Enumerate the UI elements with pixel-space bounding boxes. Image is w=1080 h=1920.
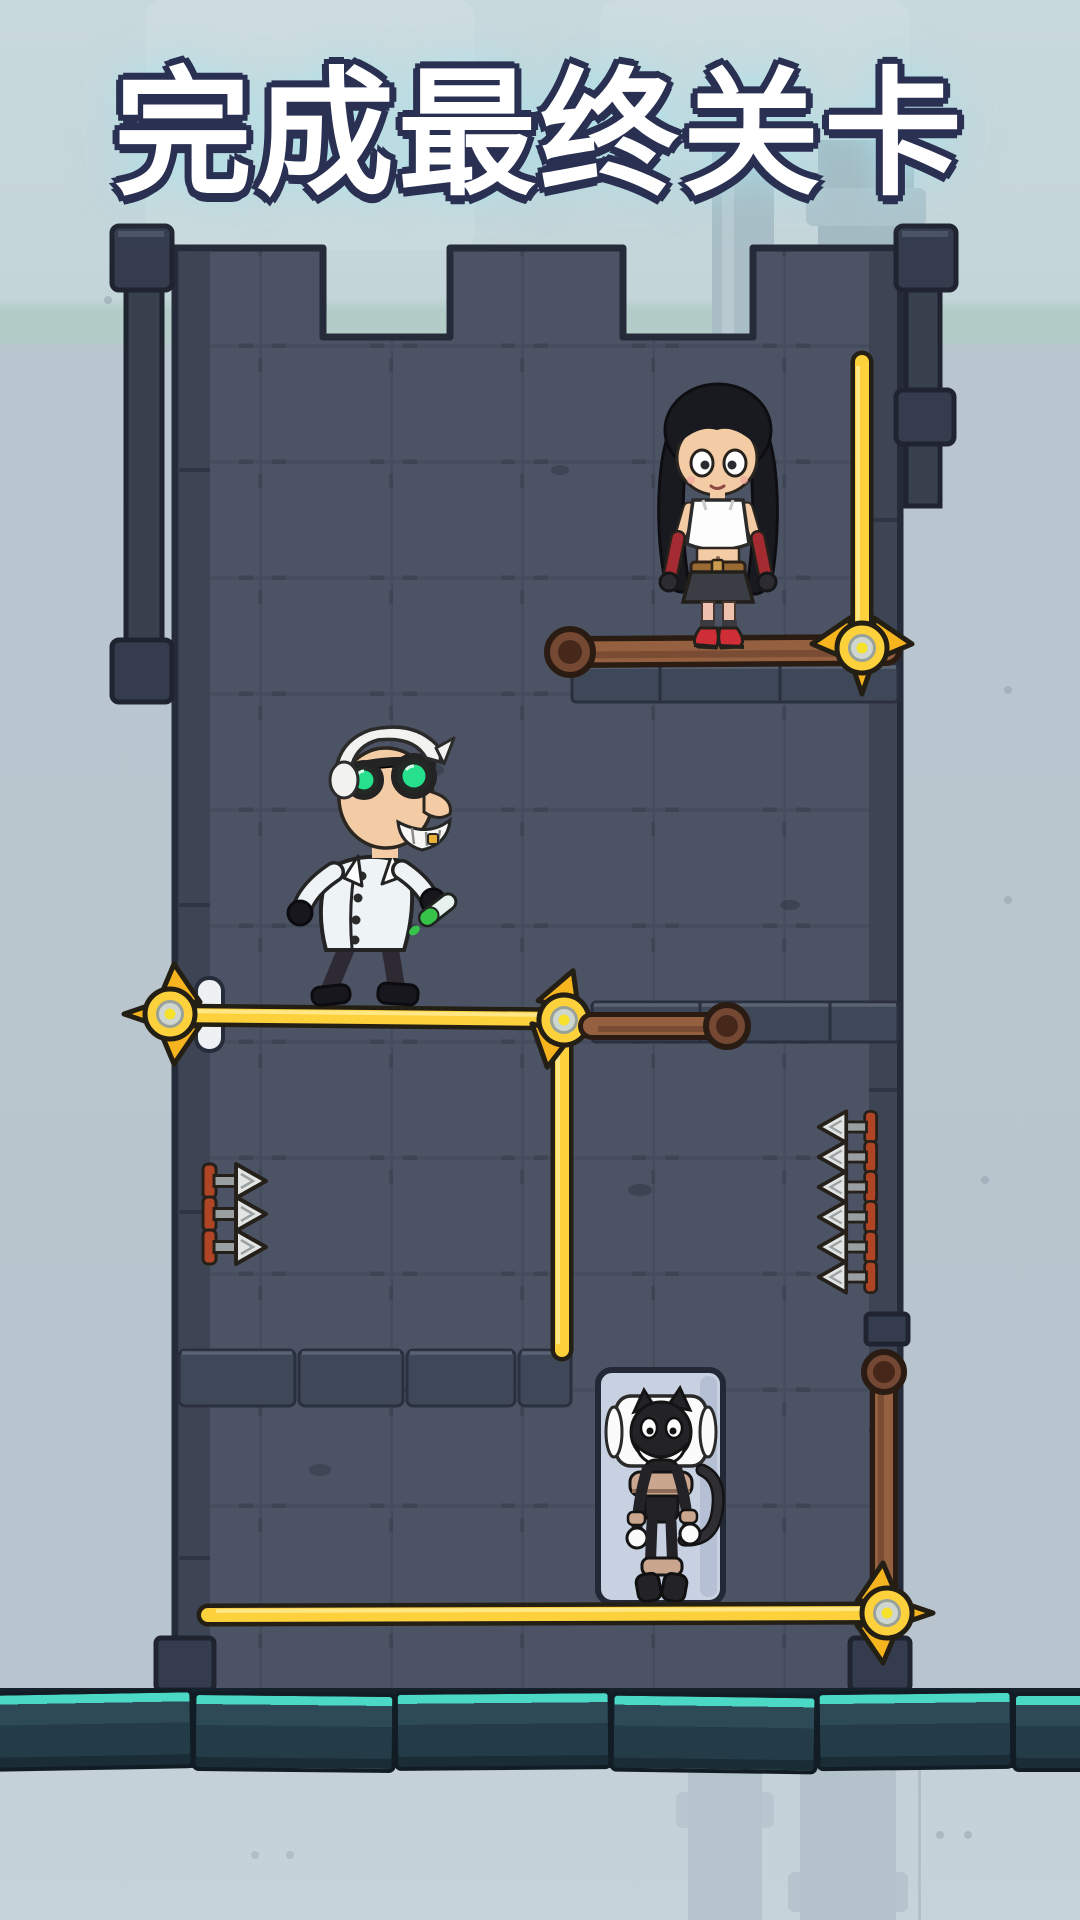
floor-stone: [609, 1692, 818, 1775]
floor-stone: [394, 1689, 613, 1771]
level-scene: [0, 0, 1080, 1920]
left-wall-spikes: [203, 1164, 266, 1264]
wall-left-border: [179, 252, 210, 1690]
game-stage: 完成最终关卡: [0, 0, 1080, 1920]
floor-stone: [816, 1689, 1015, 1771]
floor-stone: [1012, 1692, 1080, 1772]
cat-box: [598, 1370, 723, 1603]
castle-tower: [112, 226, 956, 1692]
level-objective-banner: 完成最终关卡: [0, 22, 1080, 222]
floor-stone: [192, 1691, 397, 1773]
floor-stone: [0, 1688, 195, 1772]
level-objective-text: 完成最终关卡: [0, 22, 1080, 222]
